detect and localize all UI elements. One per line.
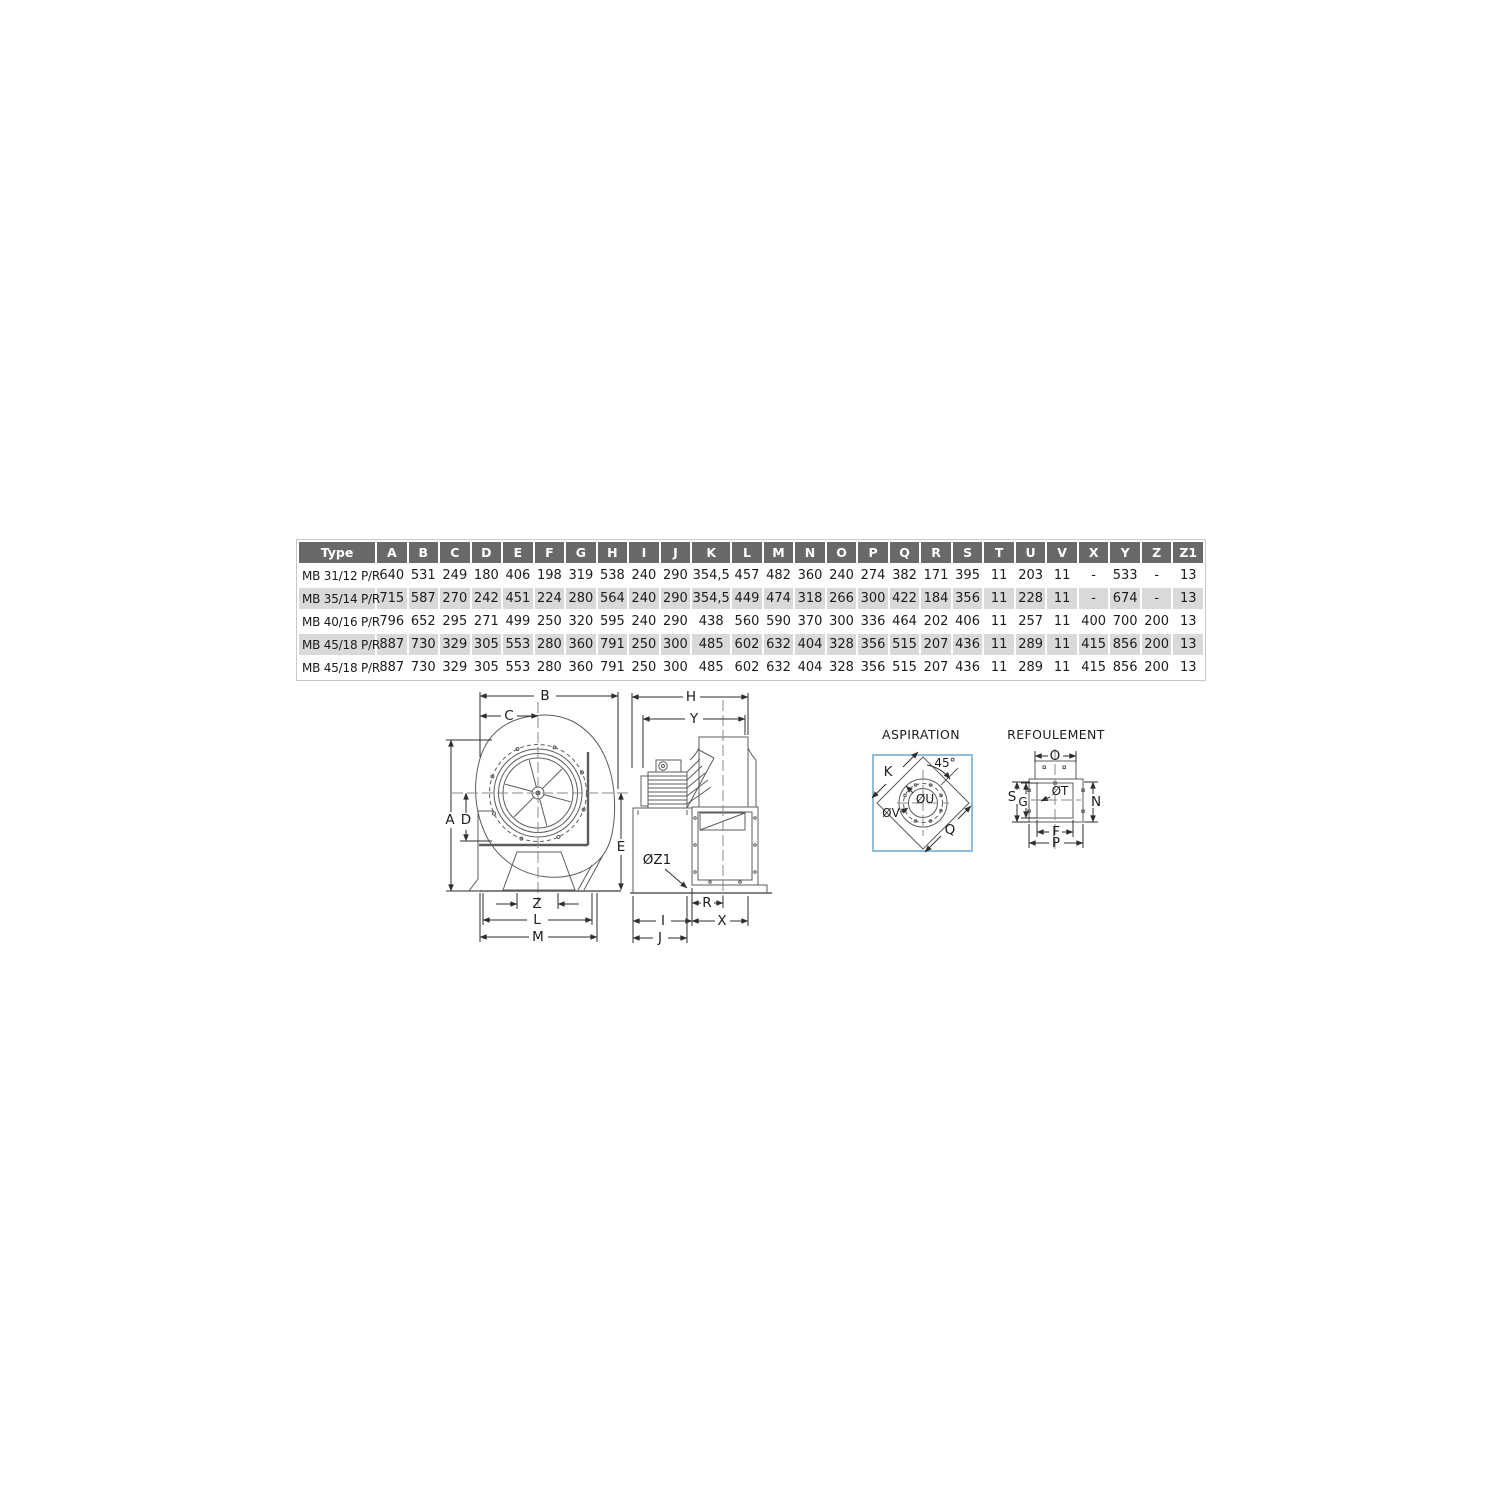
value-cell: 791 [598,634,628,655]
value-cell: 360 [795,565,825,586]
column-header-o: O [827,542,857,563]
value-cell: 464 [890,611,920,632]
dim-label-s: S [1008,789,1017,805]
column-header-v: V [1047,542,1077,563]
value-cell: 274 [858,565,888,586]
value-cell: 207 [921,657,951,678]
value-cell: 328 [827,634,857,655]
technical-drawings: B C A D E Z L M [440,685,1210,955]
dim-label-j: J [657,930,662,946]
value-cell: 856 [1110,634,1140,655]
column-header-y: Y [1110,542,1140,563]
value-cell: 538 [598,565,628,586]
column-header-q: Q [890,542,920,563]
value-cell: 404 [795,634,825,655]
column-header-g: G [566,542,596,563]
dim-label-z: Z [532,896,541,912]
value-cell: 11 [984,634,1014,655]
value-cell: 198 [535,565,565,586]
column-header-d: D [472,542,502,563]
value-cell: 415 [1079,634,1109,655]
column-header-z: Z [1142,542,1172,563]
value-cell: 249 [440,565,470,586]
dim-label-g: G [1018,795,1027,809]
dim-label-n: N [1091,794,1101,810]
angle-label-45: 45° [934,756,955,770]
value-cell: 184 [921,588,951,609]
value-cell: 499 [503,611,533,632]
dim-label-x: X [717,913,726,929]
value-cell: 280 [535,657,565,678]
dim-label-h: H [686,689,696,705]
value-cell: 305 [472,657,502,678]
value-cell: 11 [1047,565,1077,586]
value-cell: 632 [764,634,794,655]
column-header-r: R [921,542,951,563]
value-cell: 856 [1110,657,1140,678]
value-cell: 320 [566,611,596,632]
value-cell: - [1142,565,1172,586]
value-cell: 240 [629,588,659,609]
value-cell: 406 [503,565,533,586]
value-cell: 13 [1173,657,1203,678]
page: TypeABCDEFGHIJKLMNOPQRSTUVXYZZ1 MB 31/12… [0,0,1500,1500]
value-cell: 290 [661,588,691,609]
value-cell: 515 [890,634,920,655]
spec-table: TypeABCDEFGHIJKLMNOPQRSTUVXYZZ1 MB 31/12… [297,540,1205,680]
value-cell: 587 [409,588,439,609]
value-cell: 602 [732,657,762,678]
value-cell: 474 [764,588,794,609]
value-cell: 240 [629,611,659,632]
value-cell: 595 [598,611,628,632]
dim-label-ou: ØU [916,792,934,806]
dim-label-p: P [1052,835,1060,851]
column-header-z1: Z1 [1173,542,1203,563]
value-cell: 485 [692,634,730,655]
value-cell: 887 [377,634,407,655]
value-cell: 200 [1142,634,1172,655]
value-cell: 280 [535,634,565,655]
table-row: MB 45/18 P/R8877303293055532803607912503… [299,634,1203,655]
value-cell: 11 [1047,611,1077,632]
value-cell: 180 [472,565,502,586]
value-cell: 404 [795,657,825,678]
dim-label-i: I [661,913,665,929]
dim-label-b: B [540,688,549,704]
column-header-j: J [661,542,691,563]
column-header-t: T [984,542,1014,563]
value-cell: 451 [503,588,533,609]
value-cell: 289 [1016,657,1046,678]
value-cell: 300 [661,634,691,655]
value-cell: 257 [1016,611,1046,632]
dim-label-k: K [884,764,894,780]
type-cell: MB 40/16 P/R [299,611,375,632]
value-cell: 328 [827,657,857,678]
value-cell: 482 [764,565,794,586]
type-cell: MB 31/12 P/R [299,565,375,586]
value-cell: 318 [795,588,825,609]
value-cell: 250 [535,611,565,632]
value-cell: 280 [566,588,596,609]
value-cell: 791 [598,657,628,678]
value-cell: 436 [953,634,983,655]
value-cell: 436 [953,657,983,678]
type-cell: MB 45/18 P/R [299,657,375,678]
column-header-p: P [858,542,888,563]
value-cell: 203 [1016,565,1046,586]
value-cell: 640 [377,565,407,586]
value-cell: 329 [440,657,470,678]
value-cell: 730 [409,634,439,655]
value-cell: 13 [1173,565,1203,586]
value-cell: 11 [984,565,1014,586]
table-row: MB 40/16 P/R7966522952714992503205952402… [299,611,1203,632]
table-row: MB 31/12 P/R6405312491804061983195382402… [299,565,1203,586]
fan-side-view [630,700,772,906]
value-cell: 290 [661,565,691,586]
value-cell: 602 [732,634,762,655]
value-cell: 360 [566,657,596,678]
column-header-e: E [503,542,533,563]
value-cell: 171 [921,565,951,586]
column-header-h: H [598,542,628,563]
dim-label-ot: ØT [1052,784,1069,798]
dim-label-r: R [702,895,711,911]
value-cell: 13 [1173,634,1203,655]
refoulement-title: REFOULEMENT [1007,727,1105,742]
dim-label-l: L [533,912,541,928]
value-cell: 250 [629,657,659,678]
value-cell: 300 [858,588,888,609]
dim-label-q: Q [945,822,956,838]
value-cell: 242 [472,588,502,609]
value-cell: 553 [503,634,533,655]
column-header-c: C [440,542,470,563]
value-cell: 300 [827,611,857,632]
value-cell: 356 [953,588,983,609]
type-cell: MB 35/14 P/R [299,588,375,609]
value-cell: 271 [472,611,502,632]
value-cell: 370 [795,611,825,632]
table-header-row: TypeABCDEFGHIJKLMNOPQRSTUVXYZZ1 [299,542,1203,563]
value-cell: 289 [1016,634,1046,655]
value-cell: 270 [440,588,470,609]
value-cell: 228 [1016,588,1046,609]
dim-label-d: D [461,812,471,828]
value-cell: 240 [629,565,659,586]
hole-label-z1: ØZ1 [643,852,671,868]
value-cell: 300 [661,657,691,678]
dim-label-o: O [1050,748,1061,764]
aspiration-title: ASPIRATION [882,727,960,742]
column-header-s: S [953,542,983,563]
value-cell: 485 [692,657,730,678]
dim-label-m: M [532,929,544,945]
value-cell: 295 [440,611,470,632]
value-cell: 415 [1079,657,1109,678]
value-cell: 202 [921,611,951,632]
value-cell: 319 [566,565,596,586]
value-cell: 674 [1110,588,1140,609]
value-cell: 395 [953,565,983,586]
value-cell: 564 [598,588,628,609]
value-cell: 400 [1079,611,1109,632]
spec-table-wrapper: TypeABCDEFGHIJKLMNOPQRSTUVXYZZ1 MB 31/12… [296,539,1206,681]
value-cell: 11 [1047,657,1077,678]
value-cell: 730 [409,657,439,678]
side-view-dimensions: H Y ØZ1 R I X J [632,689,748,946]
value-cell: - [1079,565,1109,586]
value-cell: 336 [858,611,888,632]
column-header-type: Type [299,542,375,563]
value-cell: 354,5 [692,588,730,609]
value-cell: 422 [890,588,920,609]
column-header-l: L [732,542,762,563]
value-cell: 382 [890,565,920,586]
refoulement-dimensions: REFOULEMENT O S G ØT N F P [1007,727,1105,851]
value-cell: 438 [692,611,730,632]
value-cell: 457 [732,565,762,586]
column-header-k: K [692,542,730,563]
value-cell: 224 [535,588,565,609]
value-cell: 11 [984,611,1014,632]
value-cell: 700 [1110,611,1140,632]
value-cell: - [1079,588,1109,609]
column-header-a: A [377,542,407,563]
value-cell: - [1142,588,1172,609]
value-cell: 290 [661,611,691,632]
value-cell: 632 [764,657,794,678]
value-cell: 406 [953,611,983,632]
column-header-n: N [795,542,825,563]
column-header-m: M [764,542,794,563]
value-cell: 266 [827,588,857,609]
value-cell: 652 [409,611,439,632]
value-cell: 887 [377,657,407,678]
value-cell: 240 [827,565,857,586]
dim-label-y: Y [689,711,699,727]
value-cell: 796 [377,611,407,632]
dim-label-a: A [445,812,455,828]
value-cell: 11 [984,588,1014,609]
value-cell: 515 [890,657,920,678]
fan-front-view [452,702,632,906]
column-header-b: B [409,542,439,563]
value-cell: 207 [921,634,951,655]
table-row: MB 45/18 P/R8877303293055532803607912503… [299,657,1203,678]
value-cell: 553 [503,657,533,678]
type-cell: MB 45/18 P/R [299,634,375,655]
dim-label-e: E [617,839,626,855]
table-row: MB 35/14 P/R7155872702424512242805642402… [299,588,1203,609]
value-cell: 531 [409,565,439,586]
value-cell: 329 [440,634,470,655]
value-cell: 250 [629,634,659,655]
value-cell: 11 [1047,588,1077,609]
value-cell: 13 [1173,588,1203,609]
value-cell: 354,5 [692,565,730,586]
value-cell: 360 [566,634,596,655]
value-cell: 305 [472,634,502,655]
value-cell: 715 [377,588,407,609]
front-view-dimensions: B C A D E Z L M [445,688,625,945]
value-cell: 590 [764,611,794,632]
column-header-u: U [1016,542,1046,563]
value-cell: 356 [858,634,888,655]
value-cell: 449 [732,588,762,609]
value-cell: 200 [1142,611,1172,632]
value-cell: 11 [1047,634,1077,655]
value-cell: 533 [1110,565,1140,586]
value-cell: 11 [984,657,1014,678]
value-cell: 200 [1142,657,1172,678]
column-header-x: X [1079,542,1109,563]
value-cell: 356 [858,657,888,678]
value-cell: 13 [1173,611,1203,632]
dim-label-c: C [504,708,513,724]
value-cell: 560 [732,611,762,632]
column-header-i: I [629,542,659,563]
dim-label-ov: ØV [882,806,900,820]
column-header-f: F [535,542,565,563]
